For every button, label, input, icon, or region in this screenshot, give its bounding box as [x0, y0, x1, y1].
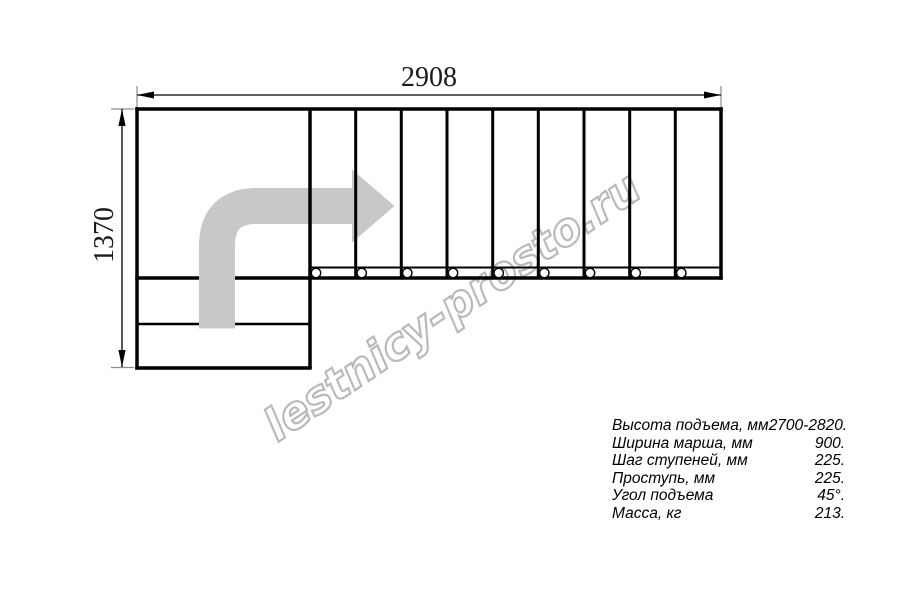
spec-value: 225.: [815, 470, 845, 488]
tread-circle: [403, 268, 412, 277]
stair-drawing-page: lestnicy-prosto.ru: [0, 0, 900, 600]
spec-row-height: Высота подъема, мм 2700-2820.: [612, 417, 845, 435]
spec-label: Ширина марша, мм: [612, 435, 753, 453]
tread-circle: [357, 268, 366, 277]
tread-circle: [585, 268, 594, 277]
specs-table: Высота подъема, мм 2700-2820. Ширина мар…: [612, 417, 845, 523]
spec-label: Проступь, мм: [612, 470, 715, 488]
tread-circle: [311, 268, 320, 277]
direction-arrow: [217, 170, 395, 329]
arrowhead-left: [137, 92, 154, 99]
tread-circle: [677, 268, 686, 277]
tread-circle: [494, 268, 503, 277]
spec-value: 213.: [815, 505, 845, 523]
dimension-width-label: 2908: [379, 64, 479, 92]
arrowhead-right: [704, 92, 721, 99]
spec-value: 2700-2820.: [769, 417, 847, 435]
spec-label: Шаг ступеней, мм: [612, 452, 748, 470]
spec-label: Угол подъема: [612, 487, 713, 505]
tread-circle: [631, 268, 640, 277]
spec-label: Высота подъема, мм: [612, 417, 769, 435]
arrowhead-up: [118, 109, 125, 126]
spec-value: 45°.: [817, 487, 845, 505]
spec-row-step-pitch: Шаг ступеней, мм 225.: [612, 452, 845, 470]
spec-row-mass: Масса, кг 213.: [612, 505, 845, 523]
spec-row-flight-width: Ширина марша, мм 900.: [612, 435, 845, 453]
spec-row-angle: Угол подъема 45°.: [612, 487, 845, 505]
spec-value: 900.: [815, 435, 845, 453]
direction-arrow-head: [352, 170, 395, 243]
dimension-height-label: 1370: [91, 185, 119, 285]
spec-label: Масса, кг: [612, 505, 681, 523]
spec-row-tread: Проступь, мм 225.: [612, 470, 845, 488]
arrowhead-down: [118, 350, 125, 367]
tread-circle: [540, 268, 549, 277]
tread-circle: [448, 268, 457, 277]
spec-value: 225.: [815, 452, 845, 470]
